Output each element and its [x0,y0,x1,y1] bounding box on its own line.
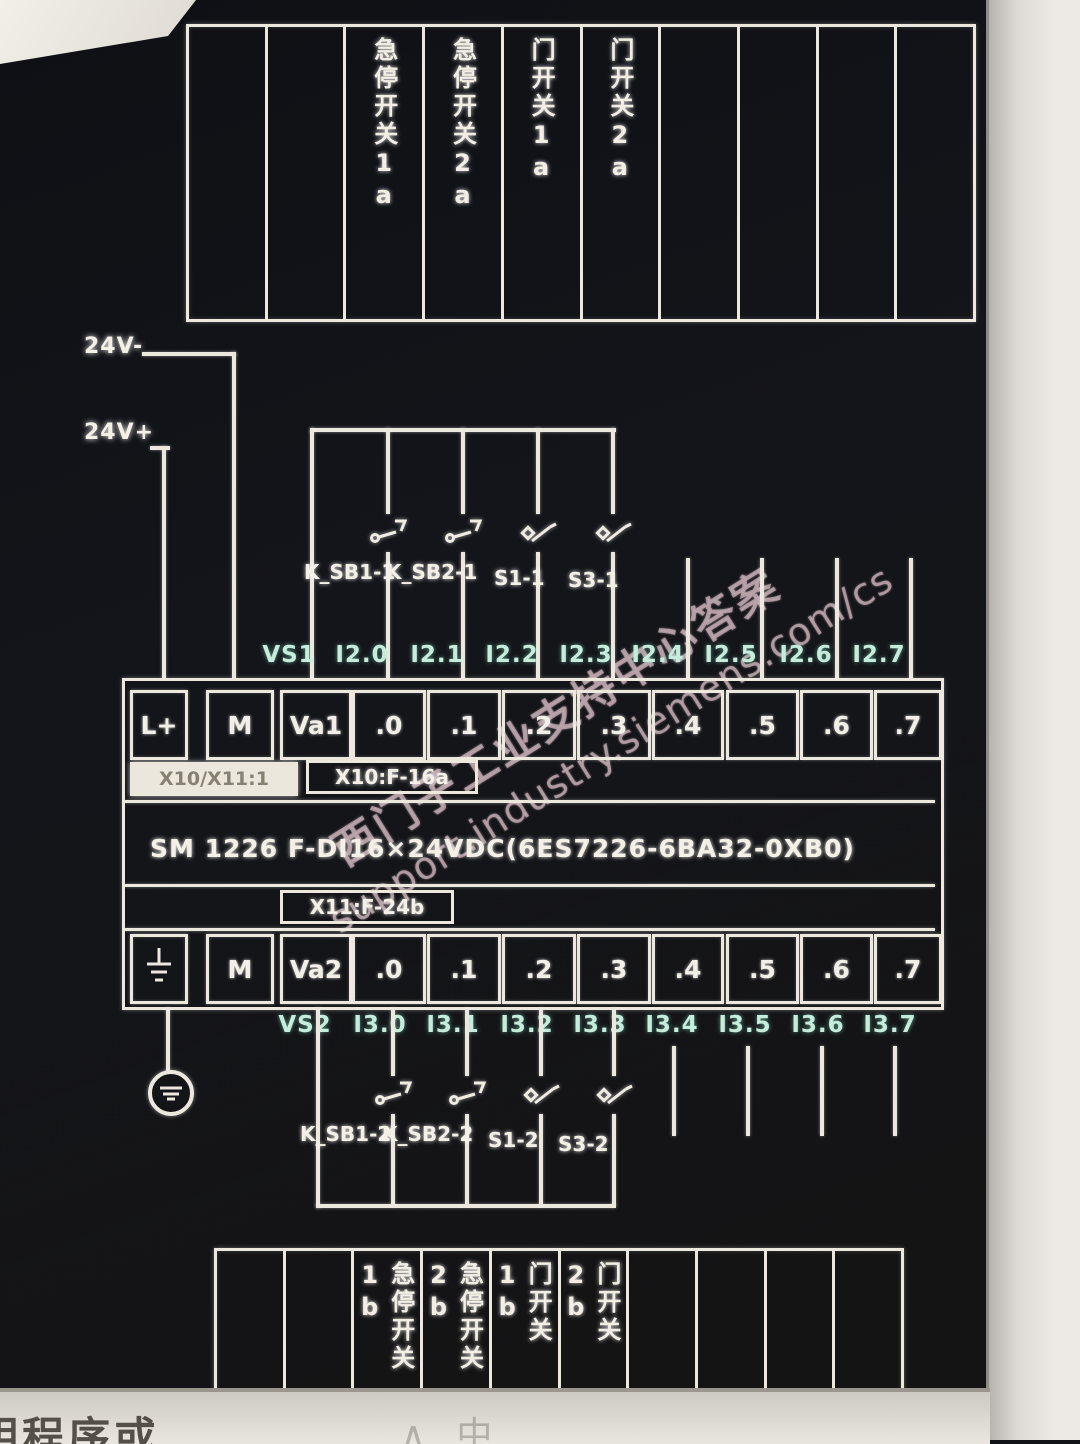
bottom-strip-column-6: 门开关2b [558,1251,627,1391]
top-strip-column-4-label: 急停开关2a [445,37,480,213]
lower-terminal-M: M [206,934,274,1004]
top-strip-column-4: 急停开关2a [422,27,501,319]
lower-terminal-.1: .1 [427,934,501,1004]
earth-electrode-icon [148,1070,194,1116]
stub-wire-I3.7 [893,1046,897,1136]
earth-terminal-icon [142,944,176,994]
bottom-strip-column-9 [764,1251,833,1391]
stub-wire-I3.5 [746,1046,750,1136]
top-strip-column-6: 门开关2a [580,27,659,319]
io-label-I2.3: I2.3 [548,642,624,668]
block-divider-2 [125,884,935,887]
top-strip-column-5-label: 门开关1a [524,37,559,185]
top-strip-column-10 [894,27,973,319]
connector-ref-bottom-cell: X11:F-24b [280,890,454,924]
switch-wire-upper-S1-1 [536,428,540,514]
io-label-I2.2: I2.2 [474,642,550,668]
lower-terminal-.4: .4 [652,934,724,1004]
lower-terminal-.6: .6 [800,934,873,1004]
upper-terminal-.5: .5 [726,690,799,760]
switch-wire-lower-S1-2 [539,1114,543,1206]
background-faint-marks: ∧中 [400,1406,522,1444]
upper-terminal-.7: .7 [874,690,942,760]
bottom-strip-column-6-label: 门开关2b [562,1261,625,1391]
upper-terminal-.0: .0 [352,690,426,760]
block-divider-3 [125,928,935,931]
bottom-strip-column-1 [217,1251,283,1391]
bottom-strip-column-10 [832,1251,901,1391]
top-terminal-strip: 急停开关1a急停开关2a门开关1a门开关2a [186,24,976,322]
upper-terminal-.3: .3 [577,690,651,760]
stub-wire-I3.6 [820,1046,824,1136]
switch-wire-upper-S3-1 [611,428,615,514]
upper-terminal-.4: .4 [652,690,724,760]
switch-label-S3-1: S3-1 [568,568,619,592]
bottom-strip-column-3: 急停开关1b [351,1251,420,1391]
vs1-feed-vertical [310,428,314,678]
io-label-I2.6: I2.6 [768,642,844,668]
earth-wire [166,1008,170,1072]
io-label-I2.7: I2.7 [841,642,917,668]
io-label-I3.6: I3.6 [780,1012,856,1038]
switch-wire-upper-K_SB1-2 [391,1008,395,1076]
lower-terminal-.2: .2 [502,934,576,1004]
io-label-I2.4: I2.4 [620,642,696,668]
io-label-I2.0: I2.0 [324,642,400,668]
upper-terminal-Va1: Va1 [280,690,352,760]
top-strip-column-5: 门开关1a [501,27,580,319]
io-label-I3.4: I3.4 [634,1012,710,1038]
switch-wire-upper-S3-2 [612,1008,616,1076]
lower-terminal-.5: .5 [726,934,799,1004]
switch-label-S1-1: S1-1 [494,566,545,590]
screen-bottom-edge: 明程序或 ∧中 [0,1388,990,1444]
switch-label-K_SB2-1: K_SB2-1 [386,560,477,584]
lower-terminal-.7: .7 [874,934,942,1004]
top-strip-column-3-label: 急停开关1a [367,37,402,213]
bottom-terminal-strip: 急停开关1b急停开关2b门开关1b门开关2b [214,1248,904,1394]
connector-ref-bottom: X11:F-24b [310,895,425,919]
switch-wire-upper-K_SB2-2 [465,1008,469,1076]
selected-reference-label: X10/X11:1 [130,762,298,796]
supply-negative-wire-vertical [232,352,236,678]
block-divider-1 [125,800,935,803]
photographed-cad-screen: { "watermark": { "line1": "西门子工业支持中心答案",… [0,0,1080,1440]
io-label-I2.1: I2.1 [399,642,475,668]
bottom-strip-column-8 [695,1251,764,1391]
bottom-strip-column-7 [626,1251,695,1391]
module-type-text: SM 1226 F-DI16×24VDC(6ES7226-6BA32-0XB0) [150,834,855,863]
switch-wire-upper-K_SB2-1 [461,428,465,514]
supply-positive-label: 24V+ [84,420,154,445]
bottom-strip-column-2 [283,1251,352,1391]
upper-terminal-L+: L+ [130,690,188,760]
lower-terminal-.3: .3 [577,934,651,1004]
upper-terminal-.2: .2 [502,690,576,760]
io-label-I2.5: I2.5 [693,642,769,668]
top-strip-column-8 [737,27,816,319]
supply-negative-label: 24V- [84,334,143,359]
upper-terminal-.6: .6 [800,690,873,760]
io-label-I3.3: I3.3 [562,1012,638,1038]
background-page-text: 明程序或 [0,1404,160,1444]
switch-label-K_SB1-2: K_SB1-2 [300,1122,391,1146]
switch-wire-lower-S3-2 [612,1114,616,1206]
lower-terminal-Va2: Va2 [280,934,352,1004]
top-strip-column-1 [189,27,265,319]
io-label-VS1: VS1 [251,642,327,668]
top-strip-column-7 [658,27,737,319]
connector-ref-top: X10:F-16a [335,765,449,789]
io-label-I3.1: I3.1 [415,1012,491,1038]
switch-wire-upper-K_SB1-1 [386,428,390,514]
upper-terminal-M: M [206,690,274,760]
supply-positive-wire-horizontal [150,446,170,450]
screen-glare-corner [0,0,200,70]
connector-ref-top-cell: X10:F-16a [306,760,478,794]
bottom-strip-column-4-label: 急停开关2b [424,1261,487,1391]
io-label-I3.2: I3.2 [489,1012,565,1038]
bottom-strip-column-5: 门开关1b [489,1251,558,1391]
lower-terminal-earth [130,934,188,1004]
screen-right-edge [986,0,1080,1440]
vs2-feed-vertical [316,1008,320,1208]
switch-label-K_SB2-2: K_SB2-2 [382,1122,473,1146]
bottom-strip-column-4: 急停开关2b [420,1251,489,1391]
io-label-I3.5: I3.5 [707,1012,783,1038]
switch-label-K_SB1-1: K_SB1-1 [304,560,395,584]
switch-label-S3-2: S3-2 [558,1132,609,1156]
io-label-VS2: VS2 [267,1012,343,1038]
top-strip-column-2 [265,27,344,319]
upper-terminal-.1: .1 [427,690,501,760]
bottom-strip-column-5-label: 门开关1b [493,1261,556,1391]
stub-wire-I3.4 [672,1046,676,1136]
switch-wire-upper-S1-2 [539,1008,543,1076]
lower-terminal-.0: .0 [352,934,426,1004]
top-strip-column-6-label: 门开关2a [603,37,638,185]
top-strip-column-3: 急停开关1a [343,27,422,319]
bottom-strip-column-3-label: 急停开关1b [356,1261,419,1391]
supply-positive-wire-vertical [162,446,166,678]
switch-label-S1-2: S1-2 [488,1128,539,1152]
top-strip-column-9 [816,27,895,319]
io-label-I3.0: I3.0 [342,1012,418,1038]
io-label-I3.7: I3.7 [852,1012,928,1038]
supply-negative-wire-horizontal [142,352,236,356]
